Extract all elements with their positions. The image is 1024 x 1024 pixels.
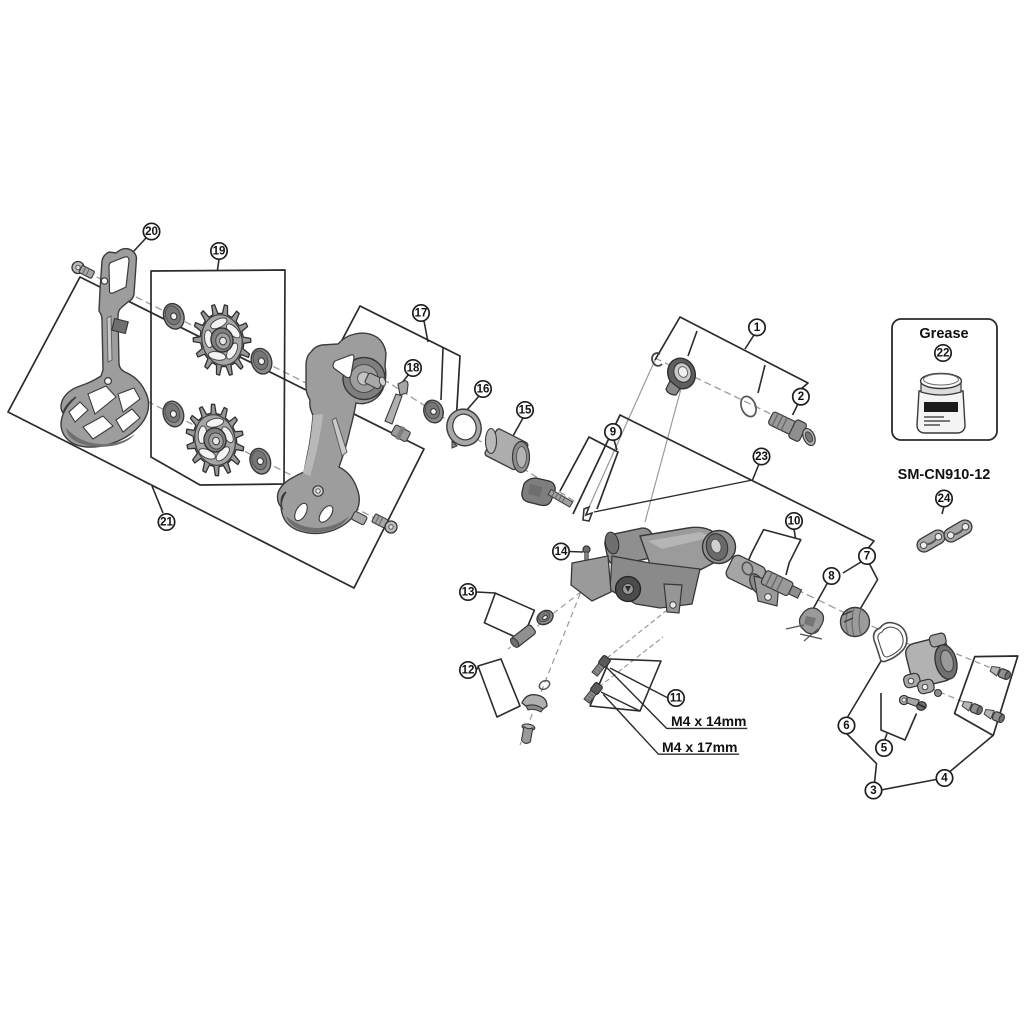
- svg-text:22: 22: [937, 348, 950, 360]
- svg-text:20: 20: [145, 226, 158, 238]
- svg-text:SM-CN910-12: SM-CN910-12: [898, 467, 991, 483]
- svg-text:2: 2: [798, 391, 804, 403]
- svg-text:18: 18: [407, 363, 420, 375]
- svg-text:Grease: Grease: [919, 326, 968, 342]
- svg-text:8: 8: [828, 571, 835, 583]
- svg-text:16: 16: [477, 384, 490, 396]
- svg-text:11: 11: [670, 693, 683, 705]
- svg-text:21: 21: [160, 517, 173, 529]
- svg-text:15: 15: [519, 405, 532, 417]
- svg-text:5: 5: [881, 743, 888, 755]
- svg-text:10: 10: [788, 516, 801, 528]
- svg-text:M4 x 14mm: M4 x 14mm: [671, 713, 746, 729]
- svg-text:M4 x 17mm: M4 x 17mm: [662, 739, 737, 755]
- svg-text:19: 19: [213, 246, 226, 258]
- svg-text:1: 1: [754, 322, 761, 334]
- svg-text:24: 24: [938, 493, 951, 505]
- svg-text:7: 7: [864, 551, 870, 563]
- svg-text:12: 12: [462, 665, 475, 677]
- svg-text:3: 3: [870, 785, 876, 797]
- svg-text:4: 4: [941, 773, 948, 785]
- svg-text:14: 14: [555, 546, 568, 558]
- svg-text:23: 23: [755, 451, 768, 463]
- svg-text:17: 17: [415, 308, 428, 320]
- svg-text:6: 6: [843, 720, 849, 732]
- svg-text:13: 13: [462, 587, 475, 599]
- svg-text:9: 9: [610, 427, 616, 439]
